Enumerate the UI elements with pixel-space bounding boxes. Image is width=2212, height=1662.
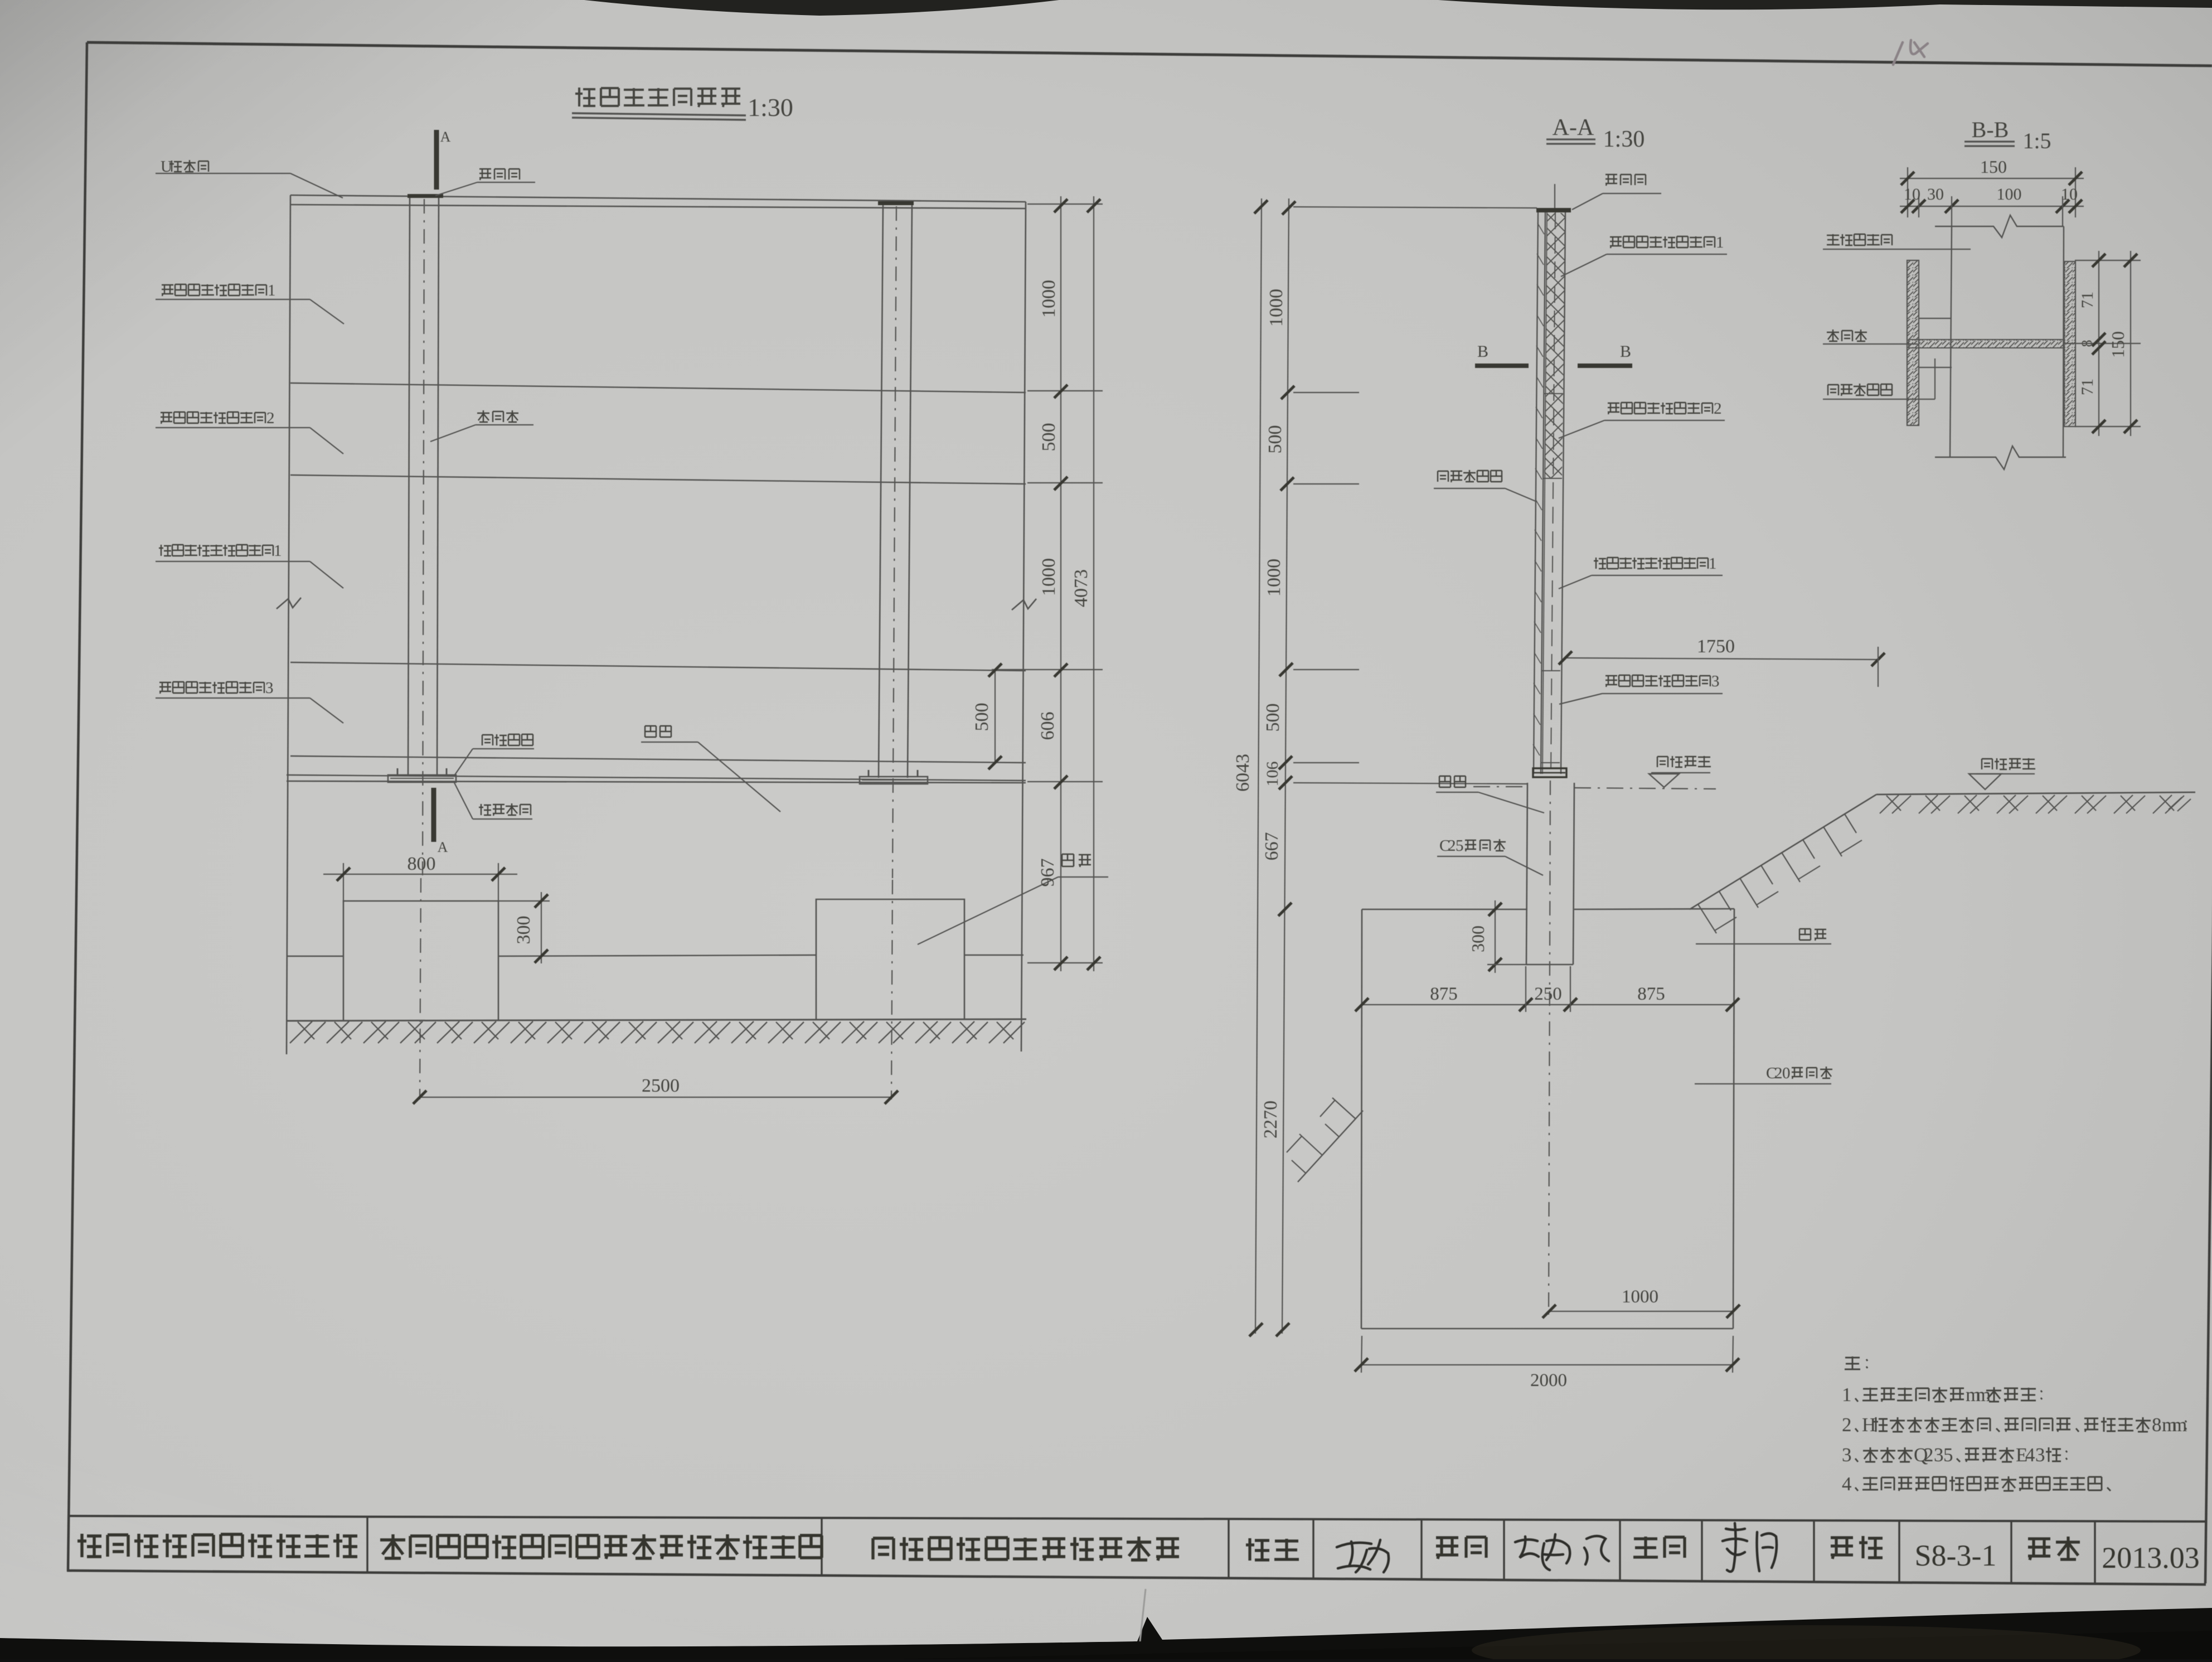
svg-text:10: 10 [2061, 185, 2078, 203]
svg-text:3: 3 [1934, 1444, 1944, 1466]
svg-text:875: 875 [1430, 984, 1458, 1004]
svg-text:B: B [1620, 342, 1631, 361]
svg-text:2000: 2000 [1530, 1370, 1567, 1390]
svg-text:1000: 1000 [1264, 559, 1284, 597]
svg-text:1750: 1750 [1697, 636, 1735, 657]
svg-text:500: 500 [1039, 423, 1059, 452]
svg-text:1000: 1000 [1039, 558, 1059, 596]
svg-text:8: 8 [2152, 1414, 2162, 1436]
svg-text:m: m [2172, 1414, 2187, 1436]
svg-text:30: 30 [1927, 185, 1944, 203]
svg-text:500: 500 [972, 703, 992, 731]
svg-text:B: B [1477, 342, 1488, 361]
svg-text:10: 10 [1904, 185, 1920, 203]
svg-text:A-A: A-A [1553, 115, 1594, 140]
svg-text:3: 3 [2035, 1444, 2045, 1466]
svg-text:300: 300 [513, 916, 534, 944]
svg-text:1000: 1000 [1039, 280, 1059, 318]
svg-text:8: 8 [2079, 340, 2095, 347]
svg-text:4073: 4073 [1071, 569, 1092, 607]
svg-text:1:5: 1:5 [2022, 128, 2051, 153]
svg-text:m: m [1976, 1384, 1991, 1406]
svg-text:1000: 1000 [1266, 289, 1287, 327]
svg-text:2: 2 [1774, 1064, 1783, 1082]
svg-text:100: 100 [1997, 185, 2022, 203]
svg-text:150: 150 [2108, 331, 2128, 358]
svg-text:2: 2 [1714, 400, 1722, 418]
svg-text:1: 1 [274, 542, 282, 560]
svg-text:2: 2 [266, 409, 275, 427]
svg-text:5: 5 [1943, 1444, 1953, 1466]
svg-text:1: 1 [1716, 234, 1724, 251]
svg-text:71: 71 [2078, 379, 2097, 395]
svg-text:875: 875 [1637, 984, 1665, 1004]
svg-text:2013.03: 2013.03 [2102, 1541, 2200, 1574]
svg-text:800: 800 [408, 854, 436, 874]
svg-text:1000: 1000 [1622, 1287, 1658, 1307]
svg-text:4: 4 [2025, 1444, 2035, 1466]
svg-text:A: A [438, 839, 448, 855]
svg-text:2500: 2500 [642, 1075, 680, 1096]
svg-text:2: 2 [1842, 1414, 1852, 1436]
svg-text:3: 3 [1842, 1444, 1852, 1466]
svg-text:3: 3 [1711, 672, 1720, 690]
svg-text:3: 3 [265, 679, 274, 697]
svg-text:667: 667 [1262, 832, 1282, 861]
svg-text:300: 300 [1468, 926, 1488, 952]
svg-text:1: 1 [1842, 1384, 1852, 1406]
svg-text:500: 500 [1265, 425, 1286, 454]
svg-text:B-B: B-B [1972, 117, 2009, 142]
svg-text:2: 2 [1924, 1444, 1934, 1466]
svg-text:4: 4 [1842, 1473, 1852, 1495]
svg-text:H: H [1862, 1414, 1876, 1436]
svg-text:2270: 2270 [1260, 1101, 1281, 1138]
svg-text:S8-3-1: S8-3-1 [1915, 1539, 1997, 1572]
svg-text:606: 606 [1037, 712, 1058, 740]
svg-text:1: 1 [268, 282, 276, 299]
svg-text:1:30: 1:30 [748, 93, 793, 122]
svg-text:250: 250 [1534, 984, 1562, 1004]
svg-text:6043: 6043 [1233, 754, 1253, 792]
svg-text:71: 71 [2078, 292, 2097, 308]
svg-text:2: 2 [1448, 837, 1456, 855]
svg-text:A: A [440, 129, 451, 145]
svg-text:500: 500 [1263, 704, 1283, 732]
svg-text:1:30: 1:30 [1603, 127, 1645, 152]
svg-text:5: 5 [1456, 837, 1464, 855]
svg-text:1: 1 [1709, 555, 1717, 573]
svg-text:0: 0 [1782, 1064, 1791, 1082]
svg-text:106: 106 [1263, 762, 1282, 787]
svg-text:967: 967 [1037, 859, 1058, 887]
svg-text:150: 150 [1980, 157, 2007, 177]
